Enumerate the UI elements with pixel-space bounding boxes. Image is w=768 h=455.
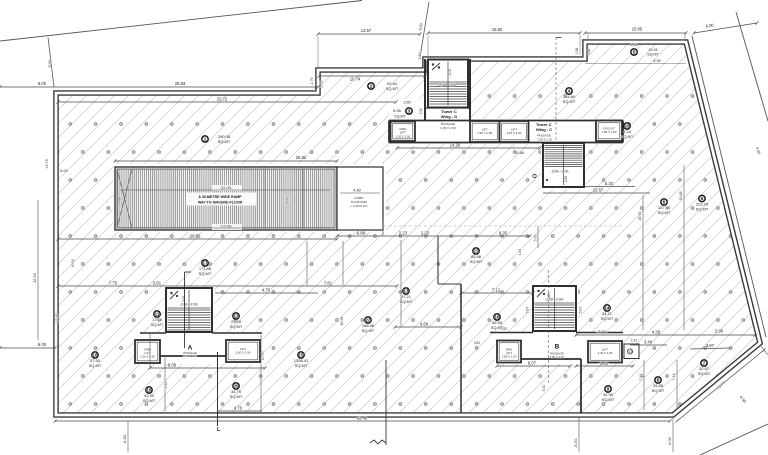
- svg-text:1.50 X 1.50: 1.50 X 1.50: [140, 355, 155, 359]
- svg-text:13: 13: [628, 350, 632, 354]
- svg-text:A 30-METRE WIDE RAMP: A 30-METRE WIDE RAMP: [198, 195, 242, 199]
- svg-text:SQ.MT: SQ.MT: [602, 397, 615, 402]
- svg-text:3.49: 3.49: [644, 340, 653, 345]
- svg-text:SQ.MT: SQ.MT: [621, 134, 634, 139]
- svg-text:2.00: 2.00: [182, 296, 186, 302]
- svg-text:8.96: 8.96: [393, 108, 402, 113]
- svg-text:2.00: 2.00: [547, 293, 551, 299]
- svg-text:20.68: 20.68: [679, 192, 683, 201]
- svg-text:13.79: 13.79: [45, 159, 49, 169]
- svg-text:14.26: 14.26: [450, 143, 461, 148]
- svg-text:SQ.MT: SQ.MT: [89, 363, 102, 368]
- svg-text:2.23: 2.23: [399, 231, 408, 236]
- svg-text:10.74: 10.74: [350, 77, 361, 82]
- svg-text:13.57: 13.57: [361, 28, 372, 33]
- svg-text:-2.00—2.00-: -2.00—2.00-: [438, 83, 457, 87]
- svg-text:SQ.MT: SQ.MT: [394, 115, 406, 119]
- svg-text:SQ.MT: SQ.MT: [696, 206, 709, 211]
- svg-text:SQ.MT: SQ.MT: [400, 299, 413, 304]
- svg-text:4.50 X 2.07: 4.50 X 2.07: [183, 354, 198, 358]
- svg-text:SQ.MT: SQ.MT: [386, 86, 399, 91]
- svg-text:SQ.MT: SQ.MT: [491, 325, 504, 330]
- svg-text:SQ.MT: SQ.MT: [470, 259, 483, 264]
- svg-text:12.60: 12.60: [261, 352, 265, 361]
- svg-text:SQ.MT: SQ.MT: [652, 388, 665, 393]
- svg-text:SQ.MT: SQ.MT: [601, 316, 614, 321]
- svg-text:5.33: 5.33: [605, 181, 614, 186]
- svg-text:-6.21-: -6.21-: [599, 361, 611, 366]
- svg-text:SQ.MT: SQ.MT: [230, 324, 243, 329]
- svg-text:Wing - C: Wing - C: [536, 127, 552, 132]
- svg-text:2.50 X 1.90: 2.50 X 1.90: [236, 350, 251, 354]
- svg-text:7.00 X 2.50: 7.00 X 2.50: [537, 138, 553, 142]
- svg-text:SQ.MT: SQ.MT: [698, 371, 711, 376]
- svg-text:6.50: 6.50: [285, 197, 289, 204]
- svg-text:4.70: 4.70: [262, 288, 271, 293]
- svg-text:L: L: [217, 427, 220, 433]
- svg-text:2.50 X 1.90: 2.50 X 1.90: [507, 131, 522, 135]
- svg-text:33.72: 33.72: [217, 97, 228, 102]
- svg-text:3.52: 3.52: [474, 341, 480, 345]
- svg-text:1.68: 1.68: [575, 48, 579, 55]
- svg-text:5.73: 5.73: [534, 235, 538, 242]
- svg-text:7.12: 7.12: [492, 288, 501, 293]
- svg-text:SQ.MT: SQ.MT: [151, 322, 164, 327]
- svg-text:5.67: 5.67: [526, 307, 530, 314]
- svg-text:+ 0.30 M LVL: + 0.30 M LVL: [350, 204, 368, 208]
- svg-text:2.40 X 1.90: 2.40 X 1.90: [598, 351, 613, 355]
- svg-text:-8.60-: -8.60-: [123, 433, 127, 444]
- svg-text:-6.00-: -6.00-: [574, 437, 578, 448]
- svg-text:2.05: 2.05: [564, 176, 568, 182]
- svg-text:4.39: 4.39: [654, 59, 661, 63]
- svg-text:2.78: 2.78: [320, 81, 324, 88]
- svg-text:2.39 X 2.50: 2.39 X 2.50: [440, 126, 456, 130]
- svg-text:15.92: 15.92: [492, 27, 503, 32]
- svg-text:10.57: 10.57: [593, 188, 604, 193]
- svg-text:4.39: 4.39: [652, 330, 661, 335]
- svg-text:-22.05-: -22.05-: [220, 186, 233, 190]
- svg-text:2.23: 2.23: [421, 231, 430, 236]
- svg-text:6.00: 6.00: [38, 81, 47, 86]
- svg-text:26.83: 26.83: [175, 81, 186, 86]
- svg-text:SQ.MT: SQ.MT: [658, 210, 671, 215]
- svg-text:-6.86-: -6.86-: [356, 231, 368, 236]
- svg-text:-6.21-: -6.21-: [597, 330, 609, 335]
- svg-text:1.13: 1.13: [418, 53, 422, 60]
- svg-text:SQ.MT: SQ.MT: [295, 363, 308, 368]
- svg-text:2.30: 2.30: [419, 108, 423, 115]
- svg-text:3.87: 3.87: [706, 343, 715, 348]
- svg-text:4.50 X 2.07: 4.50 X 2.07: [550, 355, 565, 359]
- svg-text:3.61: 3.61: [153, 281, 162, 286]
- svg-text:-22.05-: -22.05-: [220, 225, 233, 229]
- svg-text:Wing - D: Wing - D: [441, 114, 457, 119]
- svg-text:6.00: 6.00: [38, 342, 47, 347]
- svg-text:1.50 X 1.50: 1.50 X 1.50: [502, 355, 517, 359]
- svg-text:18.94: 18.94: [340, 317, 344, 326]
- svg-text:5.26: 5.26: [164, 382, 168, 389]
- svg-text:6.00: 6.00: [668, 437, 672, 444]
- svg-text:8.06: 8.06: [168, 363, 177, 368]
- svg-text:32.93: 32.93: [33, 273, 37, 283]
- svg-text:15.91: 15.91: [648, 48, 658, 52]
- svg-text:26.93: 26.93: [638, 212, 642, 221]
- svg-text:3.55: 3.55: [404, 101, 411, 105]
- svg-text:12.60: 12.60: [55, 314, 59, 323]
- svg-text:SQ.MT: SQ.MT: [199, 271, 212, 276]
- svg-text:-2.00—2.00-: -2.00—2.00-: [551, 170, 570, 174]
- svg-text:SQ.MT: SQ.MT: [143, 398, 156, 403]
- svg-text:1.68: 1.68: [587, 49, 591, 56]
- svg-text:2.40 X 1.90: 2.40 X 1.90: [477, 131, 492, 135]
- svg-text:1.92: 1.92: [518, 249, 522, 255]
- svg-text:4.70: 4.70: [234, 406, 243, 411]
- svg-text:WAY TO GROUND FLOOR: WAY TO GROUND FLOOR: [198, 201, 243, 205]
- svg-text:2.00: 2.00: [448, 69, 452, 76]
- svg-text:5.67: 5.67: [579, 307, 583, 314]
- svg-text:62.46: 62.46: [357, 416, 368, 421]
- svg-text:7.75: 7.75: [109, 281, 118, 286]
- svg-text:7.81: 7.81: [324, 281, 333, 286]
- svg-text:9.35: 9.35: [499, 231, 508, 236]
- svg-text:5.30: 5.30: [542, 385, 546, 392]
- svg-text:26.82: 26.82: [296, 155, 307, 160]
- svg-text:-2.00—2.00-: -2.00—2.00-: [180, 303, 199, 307]
- svg-text:SQ.MT: SQ.MT: [563, 99, 576, 104]
- svg-text:-26.92-: -26.92-: [188, 234, 202, 239]
- svg-text:7.41: 7.41: [672, 374, 676, 381]
- svg-text:6.00: 6.00: [60, 169, 67, 173]
- svg-text:1.98 X 1.50: 1.98 X 1.50: [602, 130, 617, 134]
- svg-text:0.88: 0.88: [516, 151, 523, 155]
- svg-text:SQ.MT: SQ.MT: [218, 139, 231, 144]
- svg-text:5.64: 5.64: [630, 43, 637, 47]
- svg-text:2.90: 2.90: [715, 329, 724, 334]
- svg-text:SQ.MT: SQ.MT: [230, 394, 243, 399]
- svg-text:2.79: 2.79: [310, 78, 314, 85]
- svg-text:B: B: [555, 344, 560, 351]
- svg-text:SQ.MT: SQ.MT: [647, 53, 659, 57]
- svg-text:6.69: 6.69: [420, 322, 429, 327]
- svg-text:1.51: 1.51: [631, 339, 637, 343]
- svg-text:7.41: 7.41: [639, 374, 643, 381]
- svg-text:4.50: 4.50: [353, 189, 360, 193]
- svg-text:10.05: 10.05: [632, 27, 643, 32]
- svg-text:SQ.MT: SQ.MT: [362, 328, 375, 333]
- svg-text:8.07: 8.07: [528, 361, 537, 366]
- svg-text:6.04: 6.04: [71, 259, 75, 266]
- svg-text:1.50 X 1.50: 1.50 X 1.50: [395, 134, 410, 138]
- svg-text:8.66: 8.66: [118, 197, 122, 204]
